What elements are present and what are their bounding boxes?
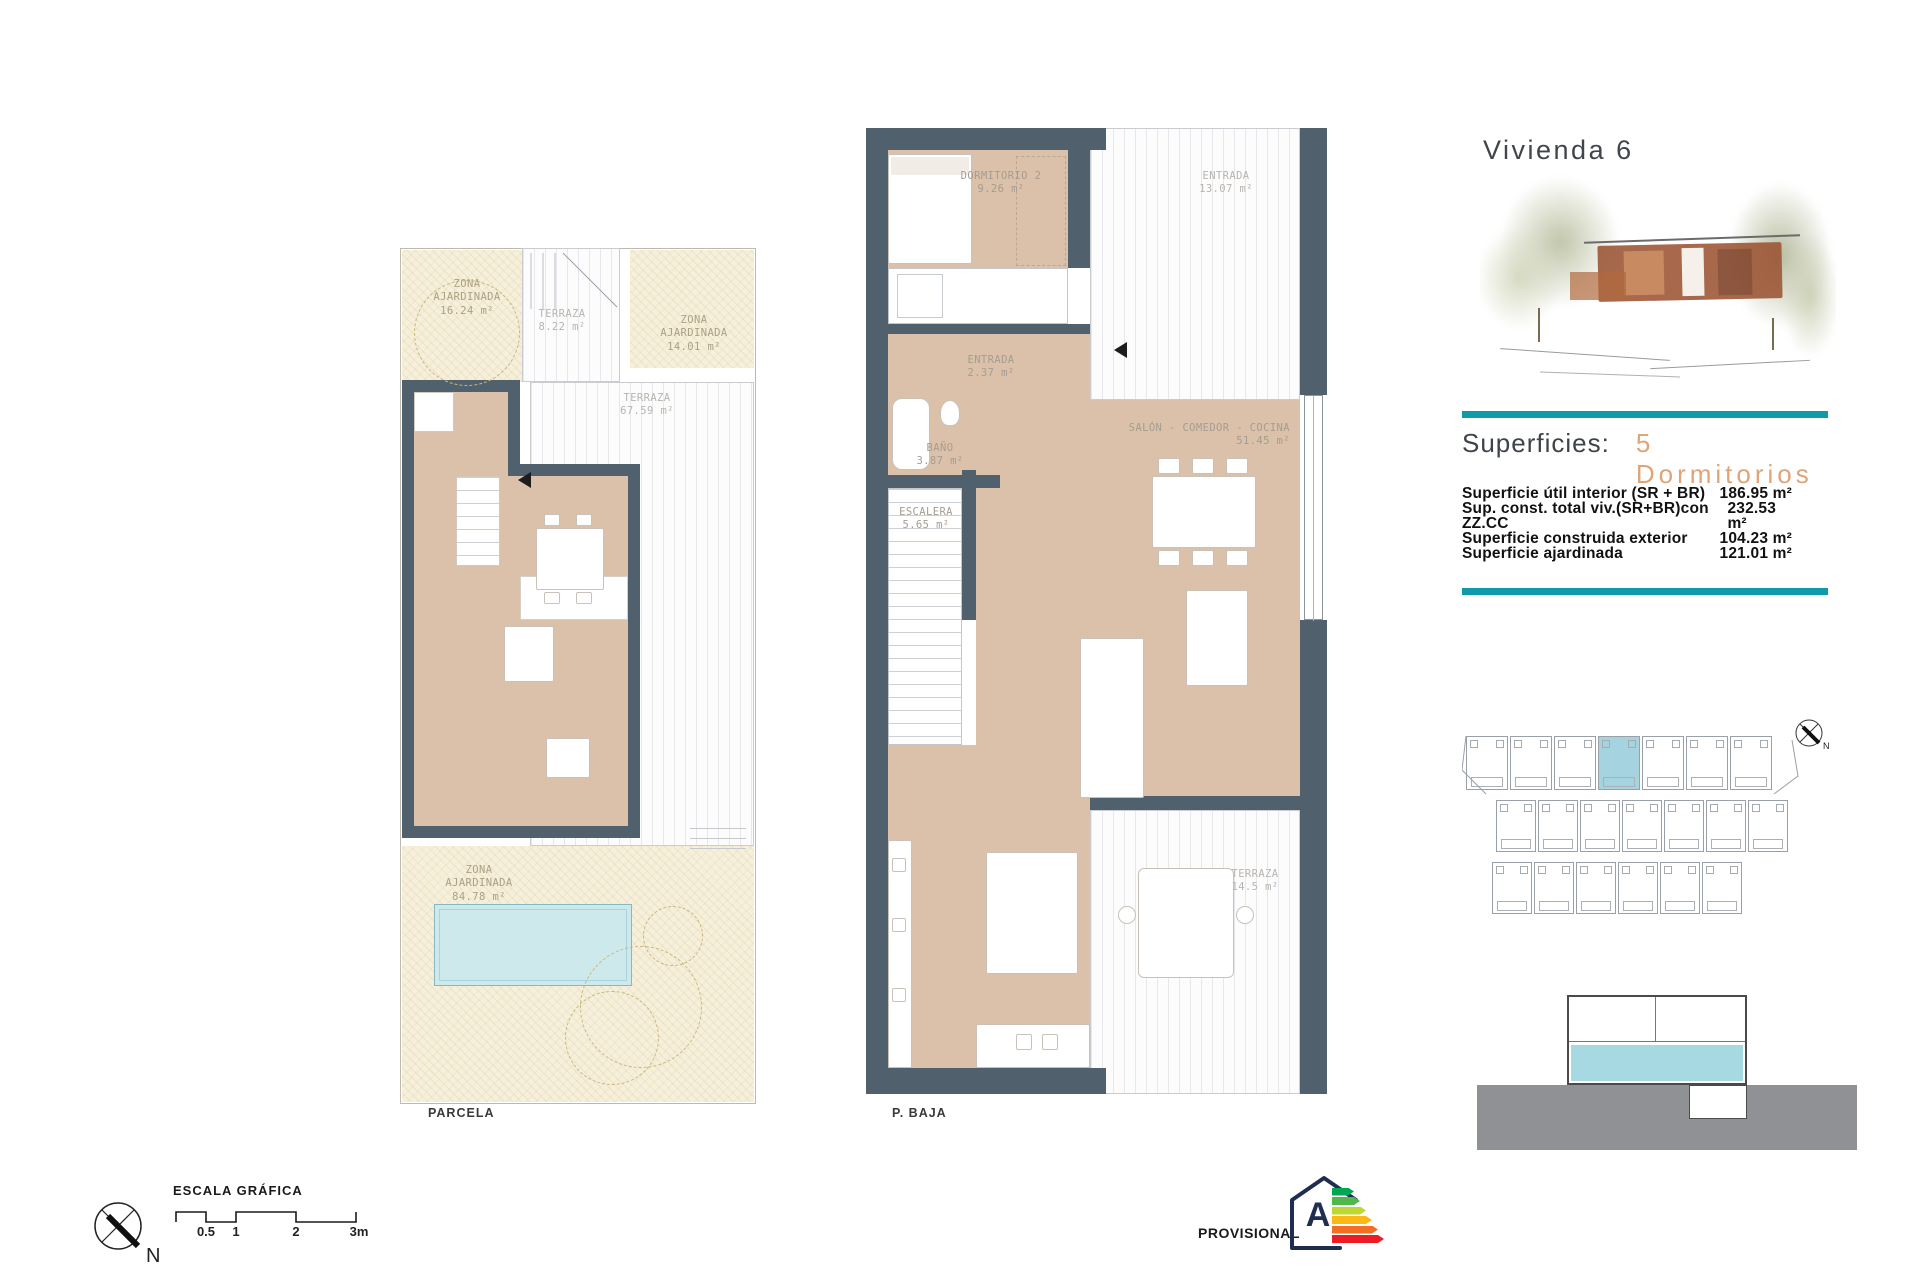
house-wall-left: [402, 380, 414, 838]
room-label-bano: BAÑO3.87 m²: [890, 428, 990, 483]
sketch-building-low: [1570, 272, 1626, 300]
superficie-row: Superficie construida exterior 104.23 m²: [1462, 531, 1792, 546]
appliance: [892, 918, 906, 932]
energy-bar: [1332, 1235, 1384, 1243]
window-strip-right: [1304, 395, 1323, 620]
terrace-chair: [1236, 906, 1254, 924]
room-label-entrada-13: ENTRADA13.07 m²: [1166, 156, 1286, 211]
superficie-label: Superficie ajardinada: [1462, 546, 1623, 561]
appliance: [892, 988, 906, 1002]
appliance: [892, 858, 906, 872]
toilet: [940, 400, 960, 426]
room-label-zona-bottom: ZONA AJARDINADA84.78 m²: [424, 850, 534, 918]
energy-bar: [1332, 1216, 1372, 1224]
scale-bar: [175, 1206, 375, 1226]
sink: [1042, 1034, 1058, 1050]
sketch-ground-line: [1500, 348, 1670, 361]
energy-bar: [1332, 1197, 1360, 1205]
sketch-facade-dark: [1718, 249, 1753, 296]
wall-hall-top: [888, 324, 1090, 334]
section-ground: [1477, 1085, 1857, 1150]
house-sketch: [1480, 168, 1836, 394]
sink: [1016, 1034, 1032, 1050]
wall-salon-terraza: [1090, 796, 1300, 810]
superficie-value: 232.53 m²: [1727, 501, 1792, 531]
parcela-plan: ZONA AJARDINADA16.24 m² TERRAZA8.22 m² Z…: [400, 246, 756, 1104]
north-compass: N: [92, 1200, 172, 1270]
energy-letter: A: [1300, 1196, 1336, 1235]
divider-top: [1462, 411, 1828, 418]
section-water-band: [1571, 1045, 1743, 1081]
energy-bar: [1332, 1226, 1378, 1234]
superficie-value: 104.23 m²: [1720, 531, 1792, 546]
section-floor-line: [1569, 1041, 1745, 1042]
energy-rating-icon: A: [1278, 1170, 1388, 1254]
sketch-ground-line: [1540, 372, 1680, 378]
room-label-terraza-large: TERRAZA67.59 m²: [592, 378, 702, 433]
kitchen-island-tall: [1080, 638, 1144, 798]
foliage: [1480, 226, 1562, 330]
site-north-label: N: [1823, 741, 1830, 751]
chair: [1226, 550, 1248, 566]
page-title: Vivienda 6: [1483, 135, 1634, 166]
pbaja-plan: DORMITORIO 29.26 m² ENTRADA13.07 m² ENTR…: [866, 128, 1327, 1094]
room-label-zona-top-left: ZONA AJARDINADA16.24 m²: [412, 264, 522, 332]
house-wall-entry-right: [508, 380, 520, 476]
house-stairs: [456, 476, 500, 566]
energy-bars: [1332, 1186, 1386, 1245]
wall-left: [866, 128, 888, 1094]
sofa: [1186, 590, 1248, 686]
plan-sheet: { "header": { "title": "Vivienda 6" }, "…: [0, 0, 1920, 1280]
porch: [414, 392, 454, 432]
door-marker: [518, 472, 531, 488]
section-building: [1567, 995, 1747, 1085]
chair: [544, 514, 560, 526]
kitchen-counter-bottom: [976, 1024, 1090, 1068]
kitchen-counter-left: [888, 840, 912, 1068]
section-basement-stair: [1689, 1085, 1747, 1119]
room-label-terraza-small: TERRAZA8.22 m²: [522, 294, 602, 349]
tree-circle: [643, 906, 703, 966]
room-label-entrada-2: ENTRADA2.37 m²: [936, 340, 1046, 395]
sketch-ground-line: [1650, 360, 1810, 369]
scale-tick-05: 0.5: [196, 1224, 216, 1239]
energy-bar: [1332, 1207, 1366, 1215]
site-plan-outline: [1462, 730, 1802, 926]
room-label-salon: SALÓN - COMEDOR - COCINA51.45 m²: [1046, 408, 1290, 463]
planter: [897, 274, 943, 318]
divider-bottom: [1462, 588, 1828, 595]
scale-tick-1: 1: [229, 1224, 243, 1239]
house-wall-right: [628, 464, 640, 838]
north-label-glyph: N: [146, 1245, 160, 1267]
superficies-heading: Superficies:: [1462, 428, 1610, 459]
parcela-caption: PARCELA: [428, 1106, 495, 1120]
sketch-trunk: [1538, 308, 1540, 342]
sketch-facade-gap: [1681, 248, 1704, 296]
bedrooms-label: 5 Dormitorios: [1636, 428, 1828, 490]
section-drawing: [1477, 990, 1857, 1150]
superficie-label: Superficie construida exterior: [1462, 531, 1688, 546]
superficie-row: Superficie útil interior (SR + BR) 186.9…: [1462, 486, 1792, 501]
site-plan: [1462, 730, 1802, 926]
chair: [544, 592, 560, 604]
chair: [1192, 550, 1214, 566]
wall-bottom: [866, 1068, 1106, 1094]
terrace-chair: [1118, 906, 1136, 924]
dining-table: [1152, 476, 1256, 548]
superficie-label: Superficie útil interior (SR + BR): [1462, 486, 1705, 501]
coffee-table-parcela: [546, 738, 590, 778]
wall-right-upper: [1300, 128, 1327, 395]
pbaja-caption: P. BAJA: [892, 1106, 947, 1120]
superficies-heading-row: Superficies: 5 Dormitorios: [1462, 428, 1828, 490]
wall-dorm-right: [1068, 128, 1090, 268]
scale-title: ESCALA GRÁFICA: [173, 1183, 303, 1198]
site-north-compass: N: [1792, 716, 1838, 756]
kitchen-island: [986, 852, 1078, 974]
wall-stair-right: [962, 470, 976, 620]
room-label-dormitorio2: DORMITORIO 29.26 m²: [946, 156, 1056, 211]
chair: [1158, 550, 1180, 566]
foliage: [1780, 234, 1836, 358]
room-label-terraza: TERRAZA14.5 m²: [1210, 854, 1300, 909]
wall-right-lower: [1300, 620, 1327, 1094]
scale-tick-2: 2: [289, 1224, 303, 1239]
superficie-label: Sup. const. total viv.(SR+BR)con ZZ.CC: [1462, 501, 1727, 531]
sofa-parcela: [504, 626, 554, 682]
superficie-value: 186.95 m²: [1720, 486, 1792, 501]
patio-court: [888, 268, 1068, 324]
room-label-escalera: ESCALERA5.65 m²: [888, 492, 964, 547]
scale-tick-3m: 3m: [346, 1224, 372, 1239]
house-wall-bottom: [402, 826, 640, 838]
tree-circle: [565, 991, 659, 1085]
superficie-row: Superficie ajardinada 121.01 m²: [1462, 546, 1792, 561]
superficies-table: Superficie útil interior (SR + BR) 186.9…: [1462, 486, 1792, 561]
section-column: [1655, 997, 1656, 1041]
room-label-zona-top-right: ZONA AJARDINADA14.01 m²: [644, 300, 744, 368]
energy-bar: [1332, 1188, 1354, 1196]
chair: [576, 514, 592, 526]
dining-table-parcela: [536, 528, 604, 590]
door-marker: [1114, 342, 1127, 358]
superficie-value: 121.01 m²: [1720, 546, 1792, 561]
sketch-trunk: [1772, 318, 1774, 350]
chair: [576, 592, 592, 604]
sketch-facade-light: [1624, 251, 1665, 296]
window-mullion: [1313, 396, 1314, 621]
garden-steps: [690, 828, 746, 858]
superficie-row: Sup. const. total viv.(SR+BR)con ZZ.CC 2…: [1462, 501, 1792, 531]
